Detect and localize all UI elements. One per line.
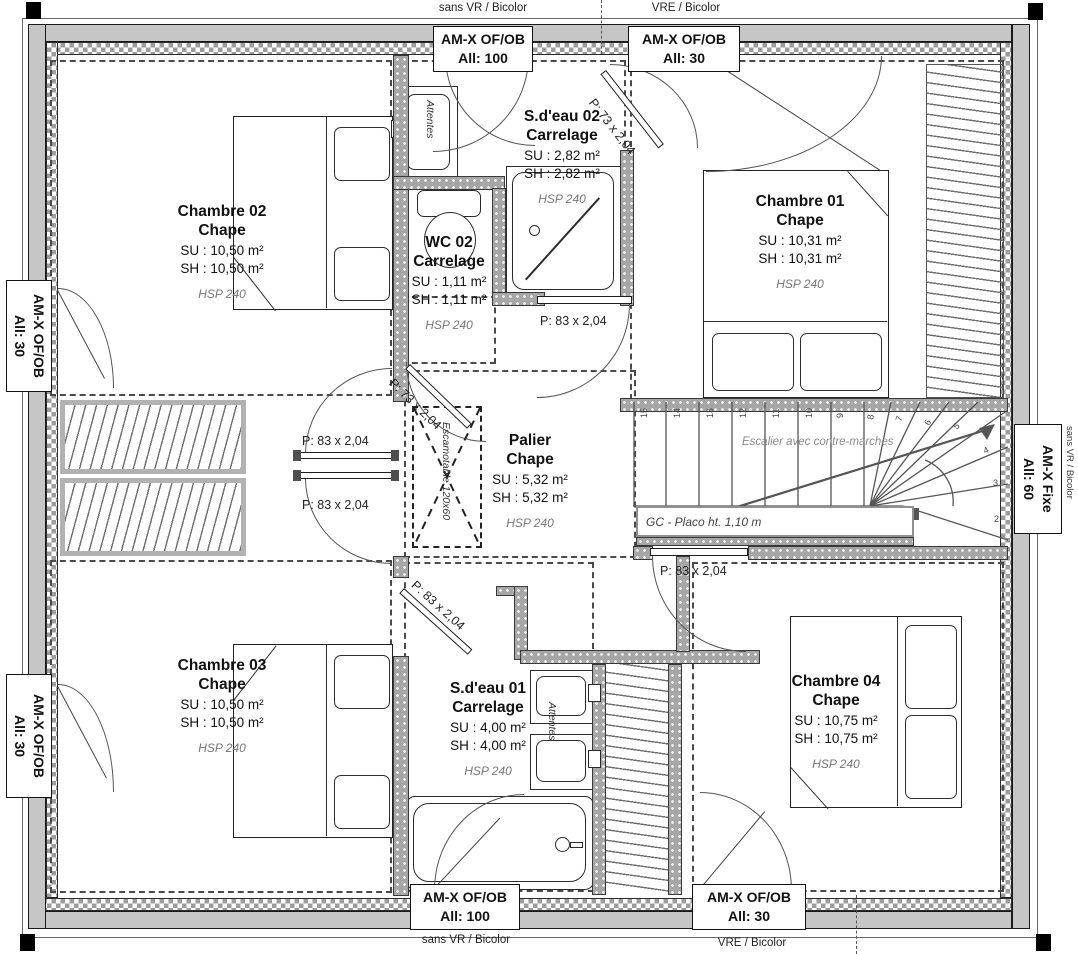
- window-bottom-left: AM-X OF/OB All: 100: [410, 884, 520, 930]
- door-label: P: 83 x 2,04: [302, 498, 369, 512]
- wall: [393, 55, 409, 402]
- window-top-right: AM-X OF/OB All: 30: [628, 26, 740, 72]
- window-note: VRE / Bicolor: [652, 937, 852, 949]
- door-leaf: [537, 296, 632, 304]
- window-note: sans VR / Bicolor: [366, 934, 566, 946]
- window-note: VRE / Bicolor: [586, 2, 786, 14]
- svg-text:12: 12: [738, 408, 748, 418]
- closet-chambre-01: [926, 64, 1004, 398]
- window-left-lower: All: 30 AM-X OF/OB: [6, 674, 52, 798]
- door-label: P: 83 x 2,04: [660, 564, 727, 578]
- attentes-label: Attentes: [546, 702, 558, 772]
- tremie-label: Escamotable 120x60: [440, 422, 452, 534]
- svg-text:8: 8: [865, 414, 876, 421]
- wall: [748, 546, 1008, 560]
- window-left-upper: All: 30 AM-X OF/OB: [6, 280, 52, 392]
- window-top-left: AM-X OF/OB All: 100: [433, 26, 533, 72]
- svg-text:2: 2: [994, 514, 999, 524]
- svg-text:14: 14: [672, 408, 682, 418]
- section-line: [856, 895, 857, 954]
- room-label-chambre-01: Chambre 01 Chape SU : 10,31 m² SH : 10,3…: [690, 193, 910, 291]
- stairs-guard-wall: GC - Placo ht. 1,10 m: [636, 506, 914, 537]
- tap-icon: [588, 750, 601, 768]
- room-label-wc-02: WC 02 Carrelage SU : 1,11 m² SH : 1,11 m…: [400, 234, 498, 332]
- closet-left-bottom: [60, 478, 246, 556]
- svg-text:3: 3: [993, 478, 998, 488]
- exterior-wall-bottom: [28, 911, 1012, 929]
- svg-text:11: 11: [771, 409, 781, 418]
- svg-text:9: 9: [835, 413, 845, 418]
- room-label-palier: Palier Chape SU : 5,32 m² SH : 5,32 m² H…: [468, 432, 592, 530]
- room-label-chambre-03: Chambre 03 Chape SU : 10,50 m² SH : 10,5…: [112, 657, 332, 755]
- closet-sdeau-01: [606, 664, 668, 892]
- attentes-label: Attentes: [424, 100, 436, 170]
- door-label: P: 83 x 2,04: [540, 314, 607, 328]
- window-note: sans VR / Bicolor: [383, 2, 583, 14]
- corner-mark: [1028, 3, 1043, 20]
- svg-text:15: 15: [639, 408, 649, 418]
- svg-text:7: 7: [893, 415, 904, 423]
- tap-icon: [588, 684, 601, 702]
- room-label-sdeau-02: S.d'eau 02 Carrelage SU : 2,82 m² SH : 2…: [472, 108, 652, 206]
- corner-mark: [1036, 934, 1051, 951]
- door-leaf: [300, 472, 392, 479]
- stairs-label: Escalier avec contre-marches: [742, 436, 893, 448]
- wall: [393, 556, 409, 578]
- svg-text:13: 13: [705, 408, 715, 418]
- stairs-guard-label: GC - Placo ht. 1,10 m: [646, 515, 761, 529]
- door-label: P: 83 x 2,04: [302, 434, 369, 448]
- wall: [514, 586, 528, 660]
- closet-left-top: [60, 400, 246, 474]
- door-leaf: [650, 548, 748, 556]
- svg-text:4: 4: [982, 445, 991, 456]
- exterior-wall-bottom-hatch: [28, 898, 1012, 911]
- window-right: All: 60 AM-X Fixe: [1014, 424, 1062, 534]
- window-bottom-right: AM-X OF/OB All: 30: [692, 884, 806, 930]
- wall: [668, 664, 682, 895]
- room-label-chambre-04: Chambre 04 Chape SU : 10,75 m² SH : 10,7…: [724, 673, 948, 771]
- svg-text:10: 10: [804, 408, 814, 418]
- floor-plan: Attentes Attentes Escamotable 120x60: [0, 0, 1078, 954]
- wall: [520, 650, 760, 664]
- corner-mark: [20, 934, 35, 951]
- room-label-chambre-02: Chambre 02 Chape SU : 10,50 m² SH : 10,5…: [112, 203, 332, 301]
- door-leaf: [300, 452, 392, 459]
- window-note: sans VR / Bicolor: [1064, 426, 1075, 536]
- corner-mark: [26, 2, 41, 19]
